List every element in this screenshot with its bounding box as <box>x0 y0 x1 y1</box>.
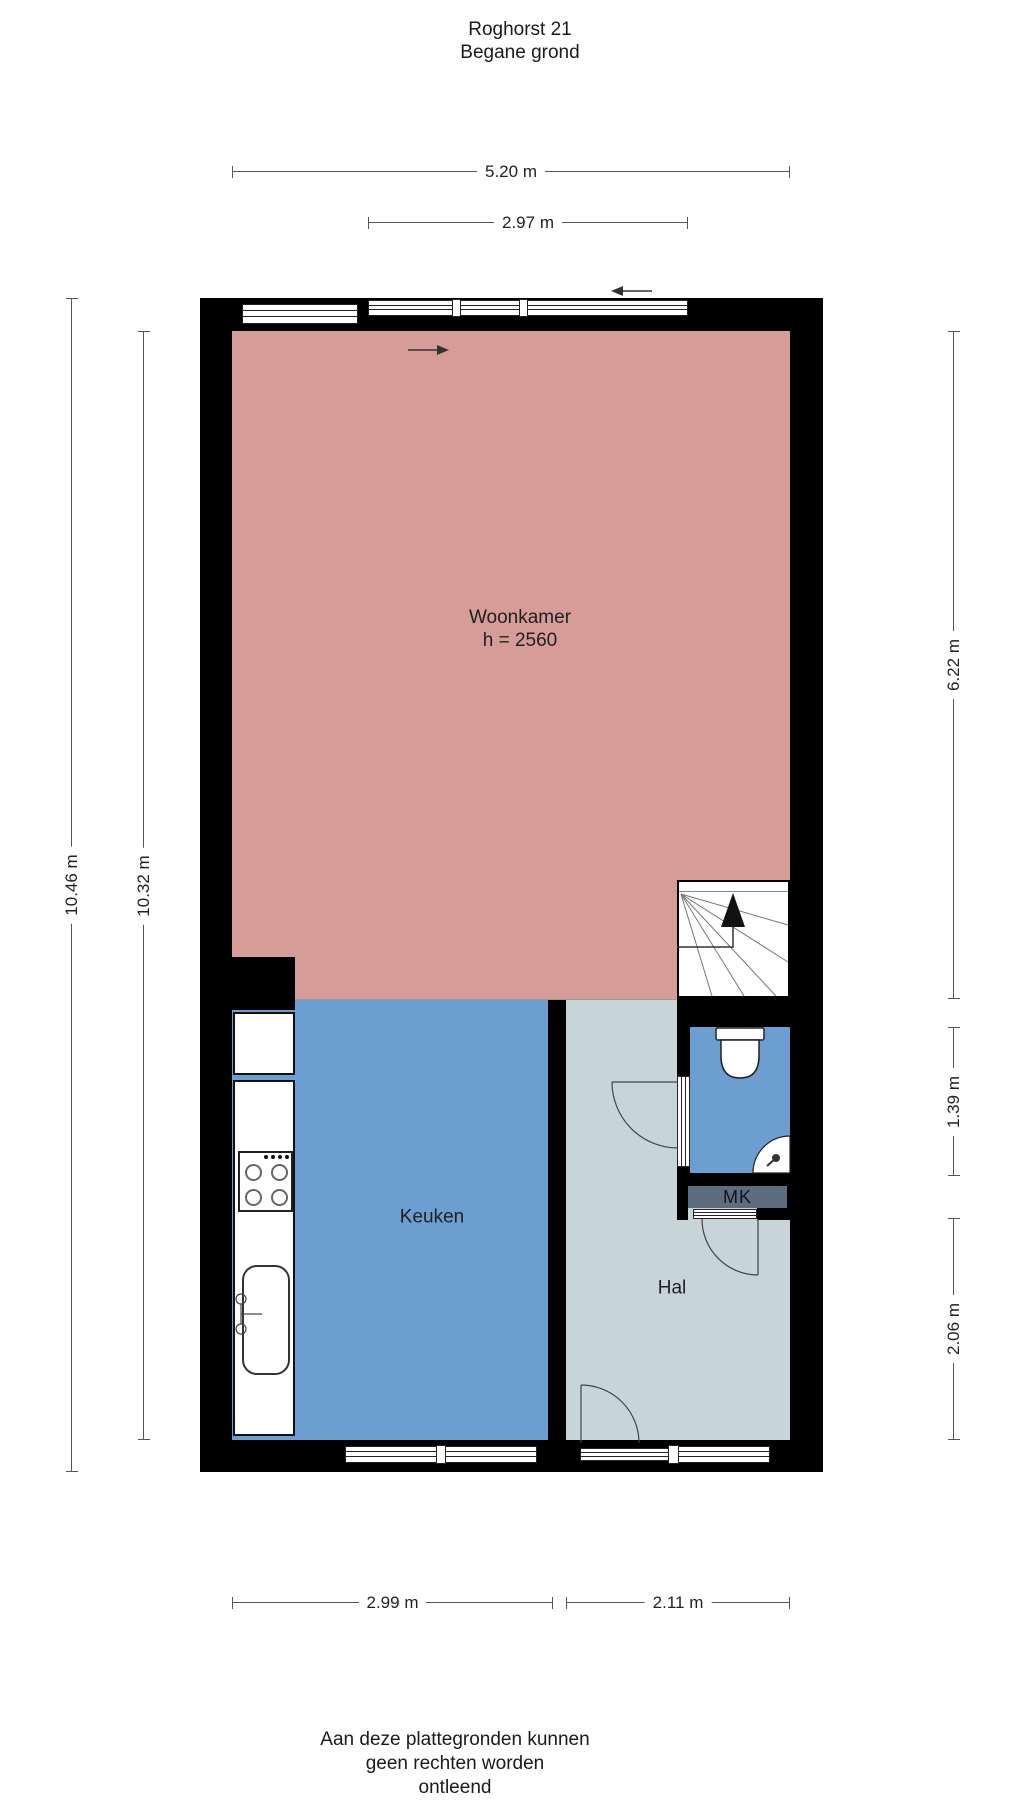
wall-below-stairs <box>677 998 790 1027</box>
room-name: Woonkamer <box>469 606 571 629</box>
dim-bottom-hal: 2.11 m <box>566 1602 790 1603</box>
stove-knob-dot <box>271 1155 275 1159</box>
stair-landing-line <box>679 891 788 892</box>
meter-cupboard-label: MK <box>723 1187 752 1208</box>
room-name: Hal <box>658 1277 687 1300</box>
room-toilet <box>690 1027 790 1173</box>
dim-top-window: 2.97 m <box>368 222 688 223</box>
wall-mk-left <box>677 1186 688 1220</box>
room-height-note: h = 2560 <box>469 629 571 652</box>
dim-label: 2.06 m <box>944 1295 964 1363</box>
window-mullion <box>519 299 528 317</box>
dim-right-toilet: 1.39 m <box>953 1027 954 1176</box>
dim-label: 6.22 m <box>944 631 964 699</box>
dim-label: 2.99 m <box>359 1593 427 1613</box>
window-mullion <box>452 299 461 317</box>
kitchen-counter-unit <box>233 1012 295 1075</box>
plan-title-floor: Begane grond <box>0 41 1024 64</box>
dim-label: 10.46 m <box>62 846 82 923</box>
stove-knob-dot <box>285 1155 289 1159</box>
dim-label: 2.11 m <box>645 1593 712 1613</box>
kitchen-counter <box>233 1080 295 1436</box>
dim-left-outer: 10.46 m <box>71 298 72 1472</box>
disclaimer-text: Aan deze plattegronden kunnen geen recht… <box>0 1728 910 1800</box>
window-top-right <box>368 300 688 316</box>
keuken-label: Keuken <box>400 1206 464 1229</box>
front-door-threshold <box>580 1448 672 1461</box>
dim-label: 2.97 m <box>494 213 562 233</box>
staircase <box>677 880 790 998</box>
window-top-left <box>242 304 358 324</box>
burner-icon <box>271 1189 288 1206</box>
hal-label: Hal <box>658 1277 687 1300</box>
wall-keuken-hal <box>548 1000 566 1440</box>
dim-label: 5.20 m <box>477 162 545 182</box>
kitchen-sink <box>242 1265 290 1375</box>
window-bottom-hal <box>676 1446 770 1463</box>
plan-title: Roghorst 21 Begane grond <box>0 18 1024 64</box>
room-name: Keuken <box>400 1206 464 1229</box>
wall-right <box>790 298 823 1472</box>
stove-knob-dot <box>278 1155 282 1159</box>
window-mullion <box>668 1445 679 1464</box>
wall-toilet-bottom <box>677 1173 790 1186</box>
disclaimer-line: ontleend <box>0 1776 910 1800</box>
burner-icon <box>271 1164 288 1181</box>
disclaimer-line: geen rechten worden <box>0 1752 910 1776</box>
dim-right-woonkamer: 6.22 m <box>953 331 954 999</box>
wall-toilet-left-upper <box>677 1027 690 1076</box>
toilet-door-panel <box>677 1076 690 1167</box>
floorplan-page: Roghorst 21 Begane grond 5.20 m 2.97 m 1… <box>0 0 1024 1820</box>
burner-icon <box>245 1164 262 1181</box>
dim-label: 10.32 m <box>134 847 154 924</box>
dim-right-hal: 2.06 m <box>953 1218 954 1440</box>
window-mullion <box>436 1445 446 1464</box>
wall-kitchen-stub <box>232 957 295 1010</box>
meter-cupboard: MK <box>688 1186 787 1208</box>
open-room-divider <box>232 999 677 1000</box>
dim-bottom-keuken: 2.99 m <box>232 1602 553 1603</box>
dim-label: 1.39 m <box>944 1068 964 1136</box>
mk-door-threshold <box>693 1209 757 1219</box>
dim-left-inner: 10.32 m <box>143 331 144 1440</box>
disclaimer-line: Aan deze plattegronden kunnen <box>0 1728 910 1752</box>
dim-top-total: 5.20 m <box>232 171 790 172</box>
burner-icon <box>245 1189 262 1206</box>
stove-knob-dot <box>264 1155 268 1159</box>
plan-title-address: Roghorst 21 <box>0 18 1024 41</box>
wall-left <box>200 298 232 1472</box>
wall-mk-right-stub <box>757 1208 790 1220</box>
slide-arrow-left-icon <box>611 286 652 296</box>
woonkamer-label: Woonkamer h = 2560 <box>469 606 571 652</box>
